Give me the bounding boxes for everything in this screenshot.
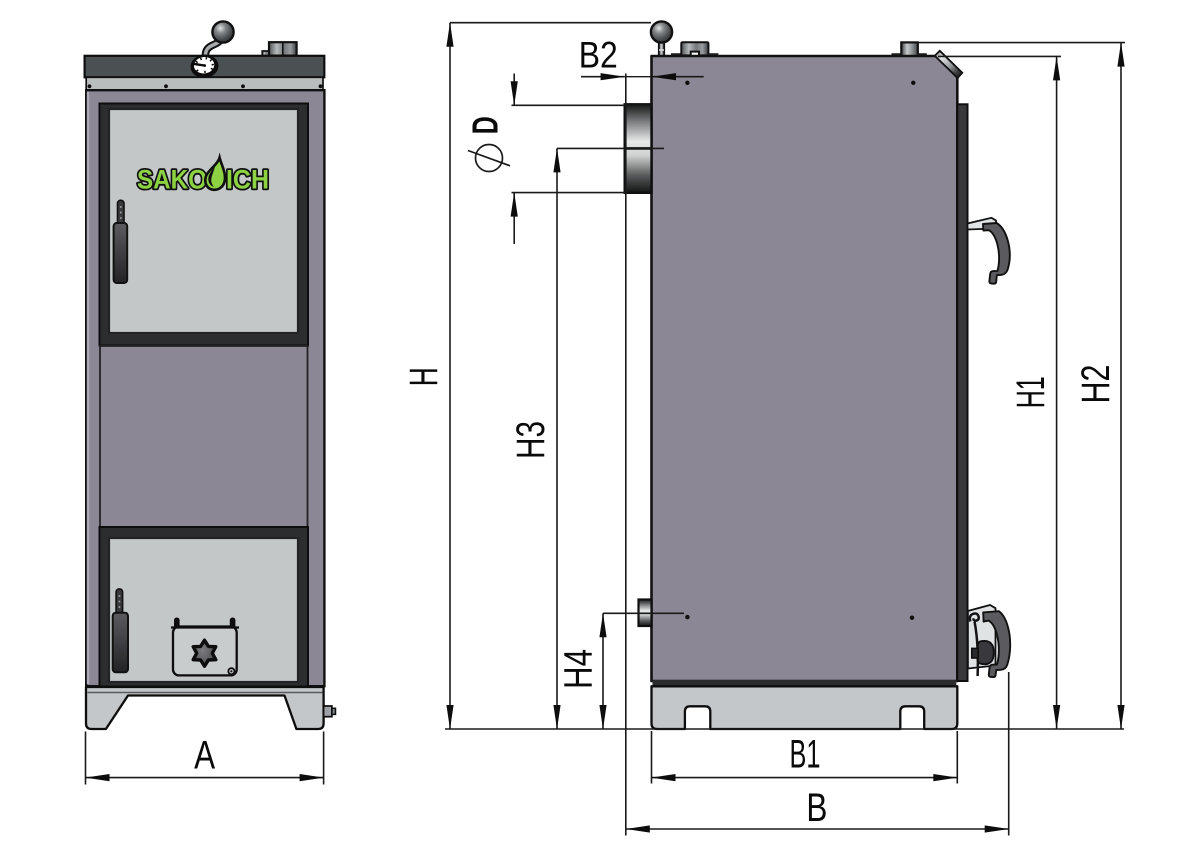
svg-text:B: B [806,786,827,830]
svg-text:A: A [194,734,215,778]
svg-text:D: D [465,116,506,134]
svg-text:H: H [402,367,446,386]
svg-text:H3: H3 [509,421,553,459]
svg-text:SAKO: SAKO [137,165,207,195]
svg-text:ICH: ICH [226,165,269,195]
svg-text:B1: B1 [790,733,821,777]
svg-text:H2: H2 [1074,365,1118,404]
svg-text:B2: B2 [579,34,618,75]
svg-text:H4: H4 [557,649,601,689]
svg-text:H1: H1 [1009,376,1053,408]
